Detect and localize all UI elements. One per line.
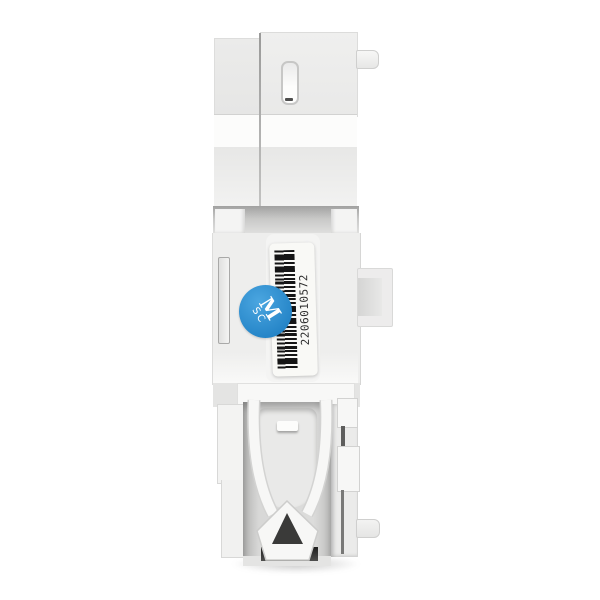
slot-contact-mark	[285, 98, 293, 101]
qc-sticker: M SC	[239, 285, 292, 338]
side-latch	[357, 268, 393, 327]
device-top-rear-block	[214, 38, 261, 117]
barcode-number: 2206010572	[296, 245, 314, 375]
upper-right-clip-block	[331, 209, 357, 235]
side-latch-recess	[358, 278, 382, 316]
bottom-mounting-pin	[356, 519, 380, 538]
housing-seam-line	[259, 33, 261, 206]
din-clip-left-arm	[254, 400, 273, 514]
din-rail-clip	[233, 396, 347, 568]
device-top-block	[260, 32, 358, 117]
product-photo: 2206010572 M SC	[0, 0, 600, 600]
top-mounting-pin	[356, 50, 379, 69]
upper-highlight-band	[214, 114, 357, 148]
upper-body-panel	[214, 147, 357, 206]
din-clip-right-arm	[307, 400, 326, 514]
upper-left-clip-block	[215, 209, 245, 235]
side-groove	[218, 257, 230, 344]
top-vent-slot	[281, 61, 299, 105]
